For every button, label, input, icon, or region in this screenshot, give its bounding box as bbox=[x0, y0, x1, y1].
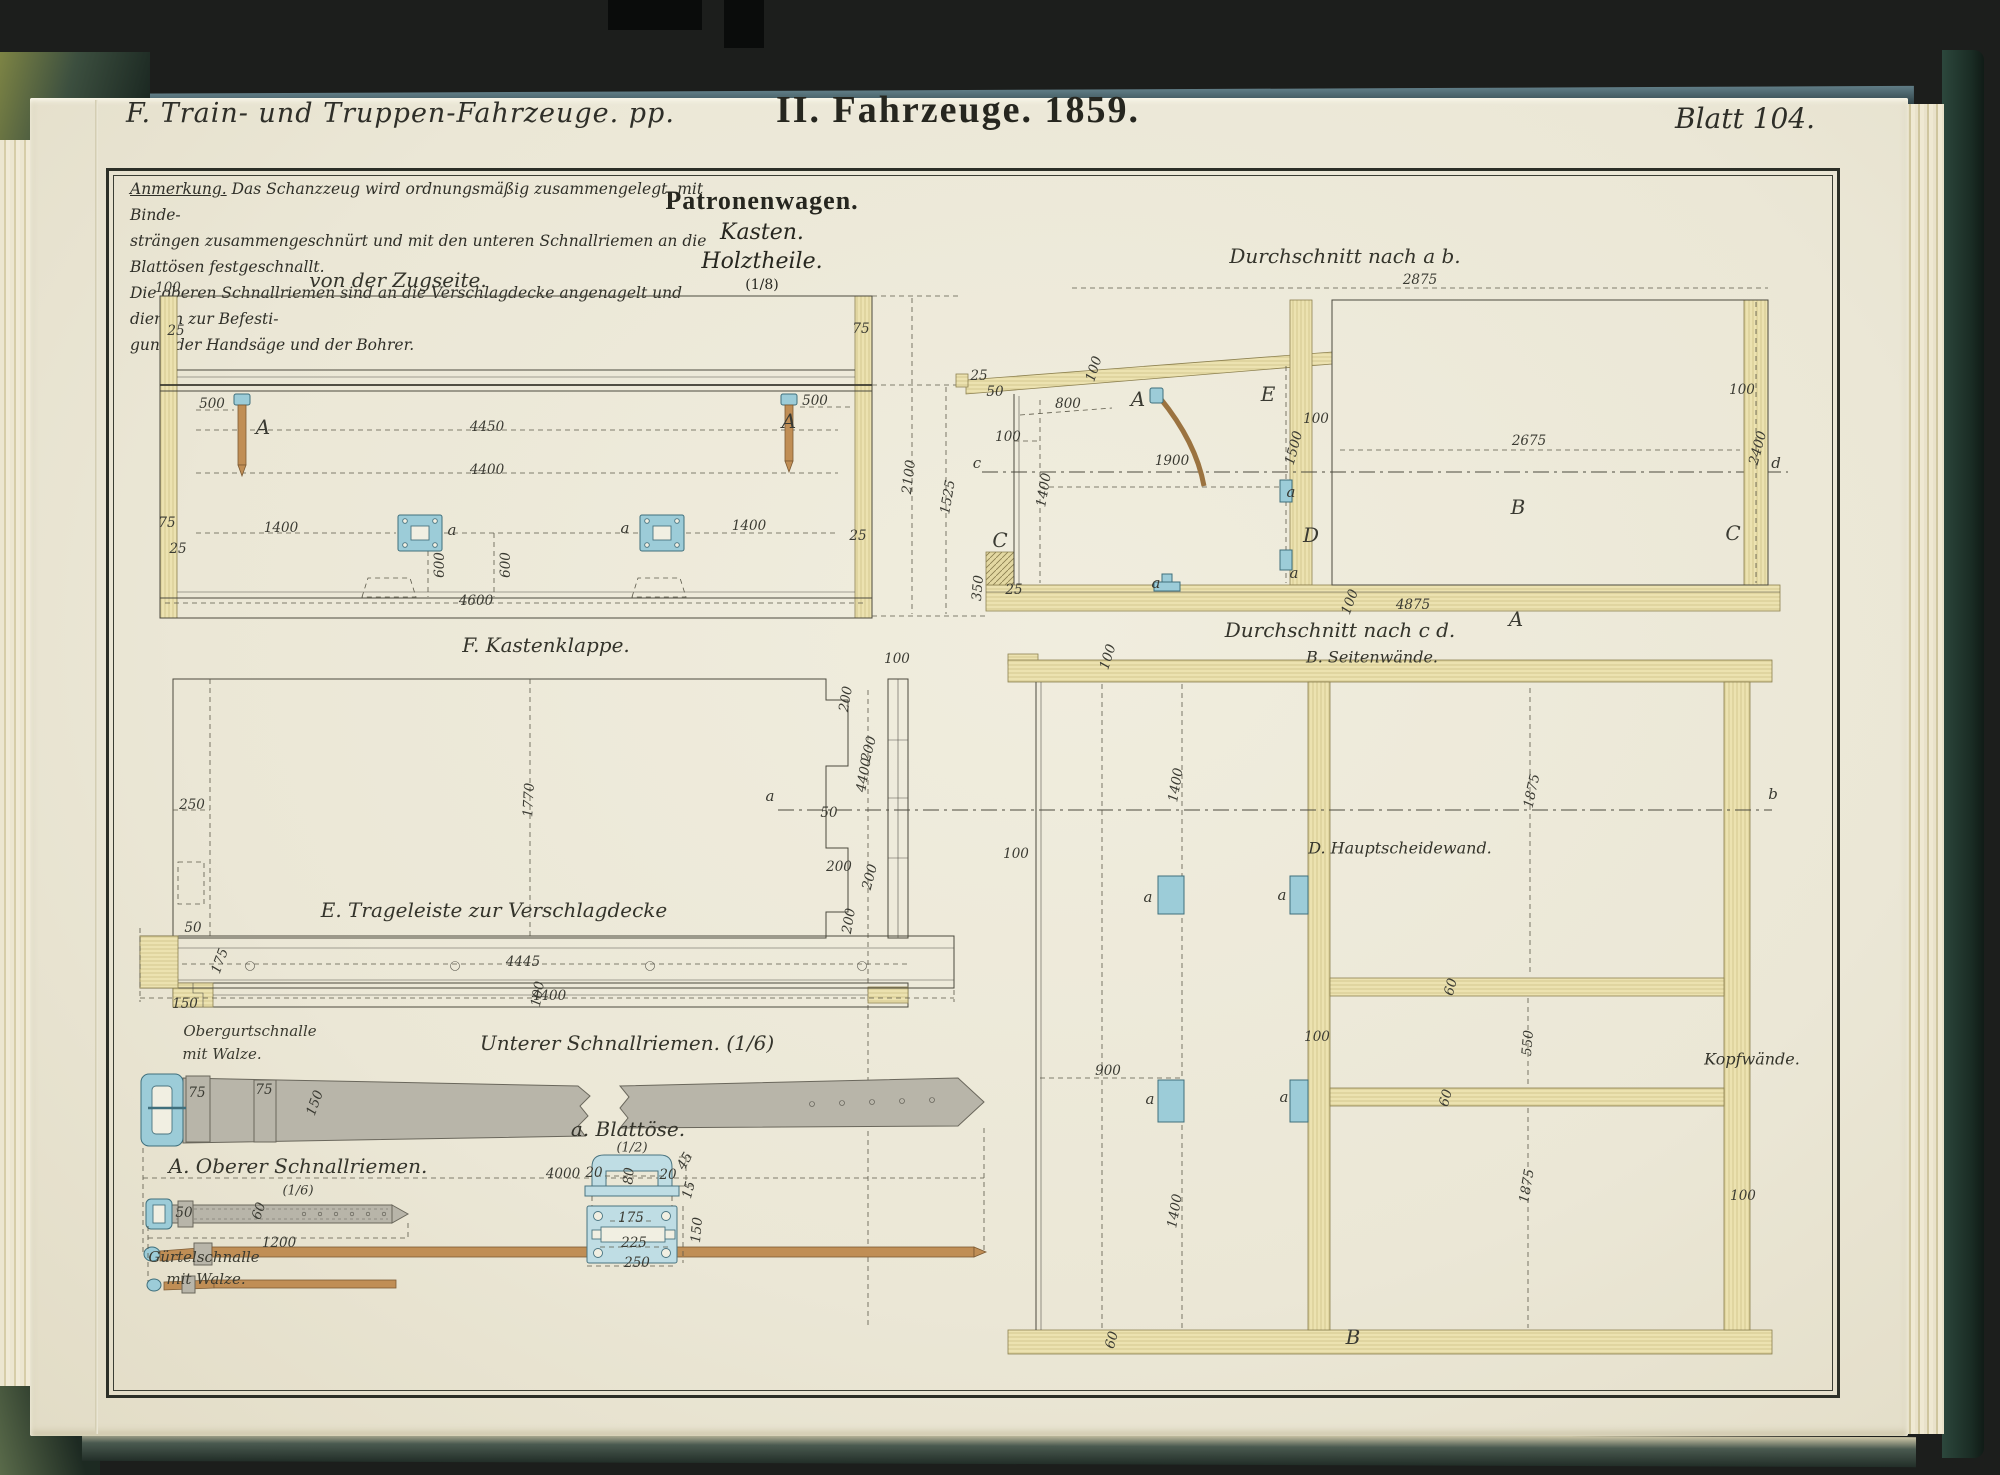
page-edge-stack-right bbox=[1906, 104, 1944, 1434]
note-line: Die oberen Schnallriemen sind an die Ver… bbox=[130, 280, 720, 332]
page-edge-stack-left bbox=[0, 92, 32, 1444]
note-line: gung der Handsäge und der Bohrer. bbox=[130, 332, 720, 358]
bookmark-tab bbox=[724, 0, 764, 48]
title-kasten: Kasten. bbox=[665, 220, 858, 245]
plate-title: II. Fahrzeuge. 1859. bbox=[776, 88, 1140, 132]
title-patronenwagen: Patronenwagen. bbox=[665, 186, 858, 216]
note-line: strängen zusammengeschnürt und mit den u… bbox=[130, 228, 720, 280]
title-scale: (1/8) bbox=[665, 277, 858, 293]
series-title: F. Train- und Truppen-Fahrzeuge. pp. bbox=[126, 98, 675, 129]
drawing-titles: Patronenwagen. Kasten. Holztheile. (1/8) bbox=[665, 186, 858, 293]
bookmark-tab bbox=[608, 0, 702, 30]
annotation-note: Anmerkung. Das Schanzzeug wird ordnungsm… bbox=[130, 176, 720, 358]
sheet-number: Blatt 104. bbox=[1675, 102, 1815, 135]
note-line: Anmerkung. Das Schanzzeug wird ordnungsm… bbox=[130, 176, 720, 228]
title-holztheile: Holztheile. bbox=[665, 249, 858, 274]
book-cover-right bbox=[1942, 50, 1984, 1458]
page-crease bbox=[95, 100, 98, 1434]
note-label: Anmerkung. bbox=[130, 180, 227, 198]
book-bottom-edge bbox=[82, 1431, 1916, 1467]
